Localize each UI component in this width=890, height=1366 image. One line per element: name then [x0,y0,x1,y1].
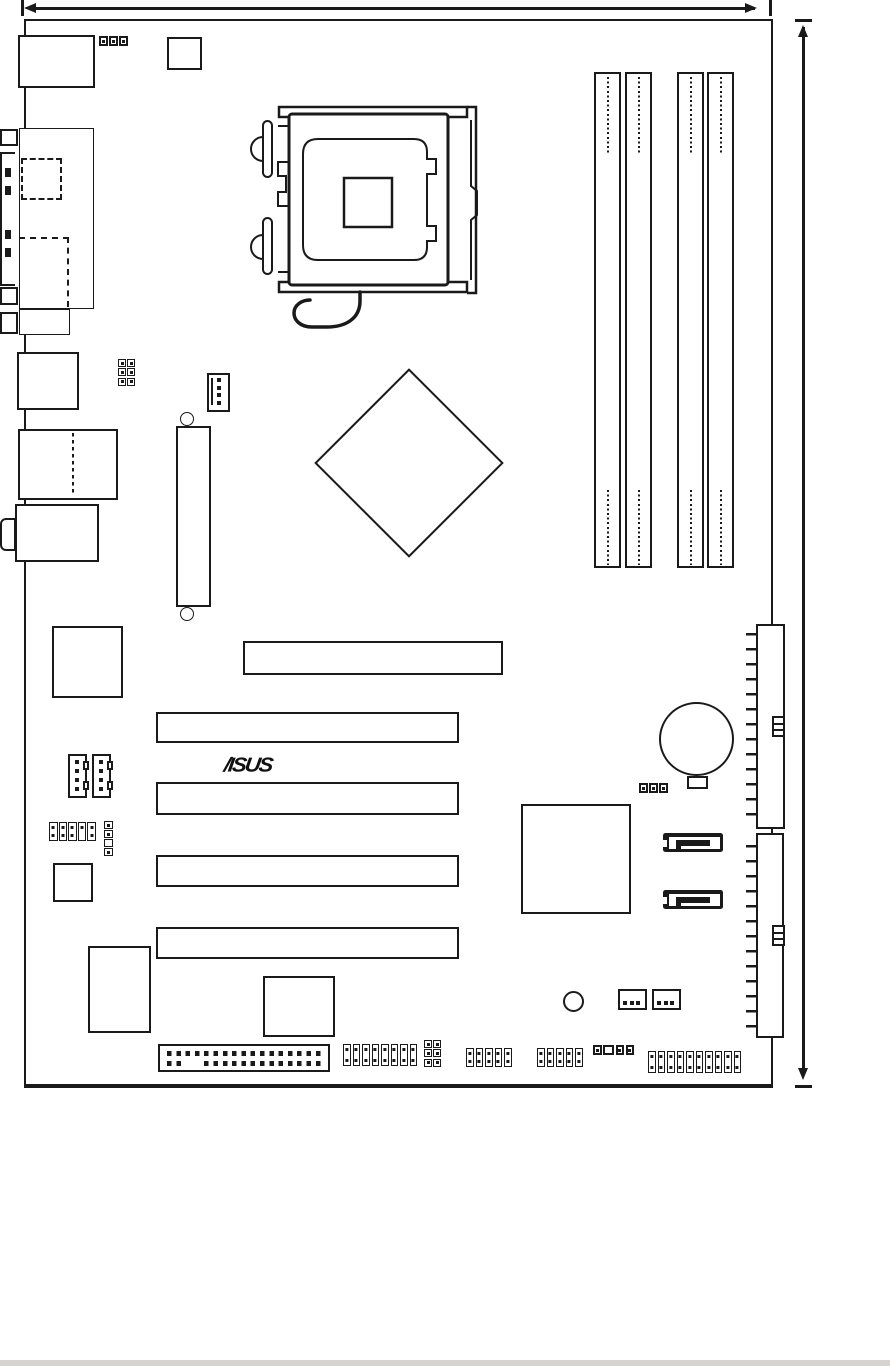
pin-dot [75,769,79,773]
com-port-header [466,1048,512,1067]
jumper-pin [616,1045,625,1055]
lever-post-bottom [263,218,272,274]
jumper-pin [424,1040,432,1048]
cd-audio-connector-2 [92,754,111,798]
header-pin-pair [400,1044,408,1066]
port-pin-mark [5,248,11,257]
jumper-pin [639,783,648,793]
sata-blade [679,840,710,846]
port-pin-mark [5,186,11,195]
header-pin-pair [677,1051,685,1073]
header-pin-pair [87,822,96,841]
dimm-slot-3 [677,72,704,568]
port-pin-mark [5,168,11,177]
usb-ports-block [17,352,79,410]
cpu-fan-connector [207,373,230,412]
pin-dot [99,760,103,764]
jumper-pin [109,36,118,46]
chassis-fan-connector [618,989,647,1010]
floppy-pins-top [167,1051,325,1056]
header-pin-pair [724,1051,732,1073]
dimm-pin-line [720,77,723,154]
asus-logo: /ISUS [222,753,273,777]
fan-pins [217,378,221,405]
header-pin-pair [466,1048,474,1067]
bios-chip [263,976,335,1037]
lan-block-divider [72,433,74,496]
spdif-header [104,821,113,856]
power-connector-hole-top [180,412,194,426]
pin-dot [75,760,79,764]
pin-dot [630,1001,634,1005]
front-panel-header [648,1051,741,1073]
jumper-pin [424,1059,432,1067]
fan-pins [657,1001,674,1005]
fan-pins [623,1001,640,1005]
atx-power-connector [176,426,211,607]
jumper-pin [127,378,135,386]
connector-notch [107,761,113,770]
pin-dot [75,787,79,791]
header-pin-pair [547,1048,555,1067]
header-pin-pair [575,1048,583,1067]
dimm-pin-line [607,77,610,154]
jumper-pin [118,378,126,386]
lever-bump-top [251,137,263,161]
speaker-jumper [593,1045,634,1055]
dimm-slot-2 [625,72,652,568]
sata-slot [669,894,720,906]
dimm-slot-4 [707,72,734,568]
ide-pin-teeth [746,633,756,825]
connector-notch [83,761,89,770]
battery-holder-tab [687,776,708,789]
pcie-x16-slot [243,641,503,675]
pin-dot [99,787,103,791]
sata-slot [669,837,720,849]
header-pin-pair [410,1044,418,1066]
audio-codec-chip [53,863,93,902]
port-pin-mark [5,230,11,239]
usb-header-block [343,1044,417,1066]
lan-controller-chip [52,626,123,698]
jumper-pin [433,1040,441,1048]
pin-dot [623,1001,627,1005]
jumper-cap [603,1045,614,1055]
lever-post-top [263,121,272,177]
game-port-header [537,1048,583,1067]
header-pin-pair [667,1051,675,1073]
io-controller-chip [167,37,202,70]
manual-page: /ISUS [0,0,890,1366]
jumper-pin [127,368,135,376]
pin-dot [217,401,221,405]
ps2-connector-block [18,35,95,88]
arrowhead-right-icon [745,3,757,13]
dimm-pin-line [690,77,693,154]
jumper-pin [433,1059,441,1067]
front-audio-header [49,822,96,841]
lan-port-block [18,429,118,500]
keyboard-power-jumper [99,36,128,46]
pin-dot [217,393,221,397]
power-connector-hole-bottom [180,607,194,621]
pin-dot [664,1001,668,1005]
jumper-pin [649,783,658,793]
connector-notch [107,781,113,790]
lever-bump-bottom [251,235,263,259]
dimension-tick-bottom [795,1085,812,1088]
dimension-tick-right [769,0,772,16]
header-pin-pair [391,1044,399,1066]
pin-dot [217,386,221,390]
dimm-pin-line [607,490,610,565]
floppy-pin-gap [184,1061,202,1066]
header-pin [104,830,113,838]
load-lever-hook [294,292,360,327]
header-pin-pair [658,1051,666,1073]
ide-key-tab [772,925,785,946]
header-pin-pair [504,1048,512,1067]
pin-dot [670,1001,674,1005]
ide-pin-teeth [746,845,756,1033]
header-pin [104,848,113,856]
southbridge-chip [521,804,631,914]
connector-notch [83,781,89,790]
header-pin-pair [648,1051,656,1073]
cd-audio-connector-1 [68,754,87,798]
dimm-pin-line [638,490,641,565]
dimm-pin-line [638,77,641,154]
header-pin-pair [476,1048,484,1067]
jumper-pin [593,1045,602,1055]
header-pin-pair [686,1051,694,1073]
jumper-pin [626,1045,635,1055]
pin-dot [657,1001,661,1005]
header-pin-pair [49,822,58,841]
pci-slot-3 [156,855,459,887]
pci-slot-2 [156,782,459,815]
sata-blade [679,897,710,903]
serial-vga-port-outline [19,237,69,307]
cd-pins [99,760,103,791]
pci-slot-1 [156,712,459,743]
onboard-led [563,991,584,1012]
audio-ports-block [15,504,99,562]
header-pin-pair [696,1051,704,1073]
pin-dot [99,769,103,773]
socket-left-steps [278,126,289,272]
jumper-pin [433,1049,441,1057]
sata-connector-1 [663,833,723,852]
pin-dot [217,378,221,382]
dimension-tick-top [795,19,812,22]
header-pin-pair [734,1051,742,1073]
dimm-slot-1 [594,72,621,568]
rear-port-stub-bottom [0,287,18,305]
rear-io-lower-block [19,309,70,335]
cd-pins [75,760,79,791]
header-pin [104,821,113,829]
pin-dot [99,778,103,782]
dimension-line-horizontal [30,7,755,10]
pin-dot [75,778,79,782]
header-pin-pair [381,1044,389,1066]
header-pin-pair [715,1051,723,1073]
jumper-pin [118,368,126,376]
rear-port-stub-strip [0,152,15,286]
header-pin-pair [353,1044,361,1066]
floppy-connector [158,1044,330,1072]
header-pin-pair [537,1048,545,1067]
arrowhead-down-icon [798,1068,808,1080]
header-pin-pair [59,822,68,841]
sata-notch [663,840,667,847]
header-pin-pair [566,1048,574,1067]
pci-slot-4 [156,927,459,959]
header-pin-pair [556,1048,564,1067]
chassis-intrusion-jumper [118,359,135,386]
usb-power-jumper [424,1040,441,1067]
arrowhead-up-icon [798,25,808,37]
parallel-port-outline [21,158,62,200]
audio-jack-tab [0,518,16,551]
dimm-pin-line [720,490,723,565]
fan-connector-key [211,378,213,405]
header-pin-pair [485,1048,493,1067]
jumper-pin [659,783,668,793]
cpu-die [344,178,392,227]
dimension-line-vertical [802,27,805,1075]
super-io-chip [88,946,151,1033]
pin-dot [636,1001,640,1005]
header-pin-pair-keyed [78,822,87,841]
header-pin-keyed [104,839,113,847]
clear-cmos-jumper [639,783,668,793]
sata-notch [663,897,667,904]
cpu-socket [248,96,490,336]
rear-port-stub-top [0,129,18,146]
header-pin-pair [362,1044,370,1066]
power-fan-connector [652,989,681,1010]
sata-connector-2 [663,890,723,909]
dimm-pin-line [690,490,693,565]
cmos-battery [659,702,734,776]
page-footer-bar [0,1360,890,1366]
jumper-pin [99,36,108,46]
header-pin-pair [343,1044,351,1066]
jumper-pin [119,36,128,46]
header-pin-pair [68,822,77,841]
arrowhead-left-icon [24,3,36,13]
jumper-pin [127,359,135,367]
jumper-pin [424,1049,432,1057]
header-pin-pair [705,1051,713,1073]
rear-port-stub-lower [0,312,18,334]
ide-key-tab [772,716,785,737]
header-pin-pair [495,1048,503,1067]
jumper-pin [118,359,126,367]
header-pin-pair [372,1044,380,1066]
